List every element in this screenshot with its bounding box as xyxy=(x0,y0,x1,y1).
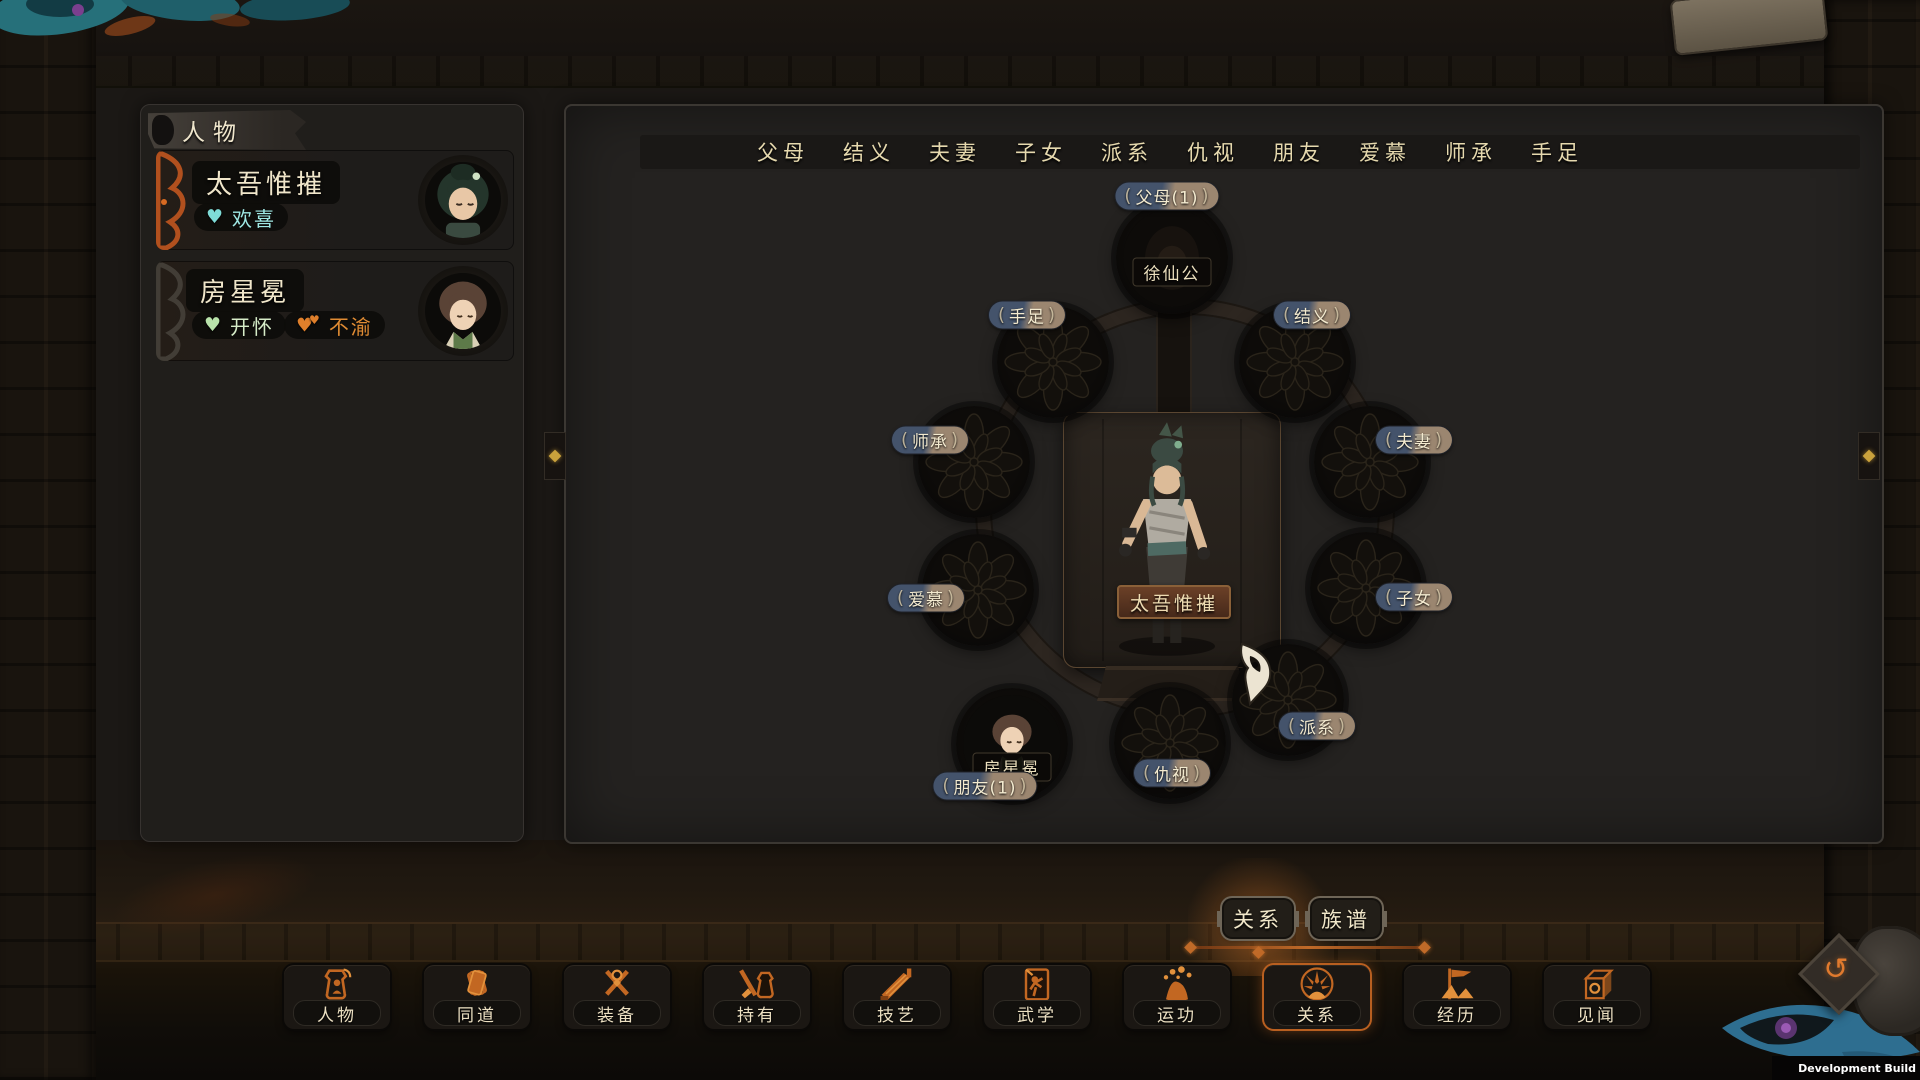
tab-friends[interactable]: 朋友 xyxy=(1273,137,1325,167)
game-cursor xyxy=(1238,642,1280,706)
knowledge-icon xyxy=(1575,966,1619,1004)
double-heart-icon: ♥♥ xyxy=(296,314,322,335)
nav-equipment[interactable]: 装备 xyxy=(564,965,670,1029)
equipment-icon xyxy=(595,966,639,1004)
nav-skills[interactable]: 技艺 xyxy=(844,965,950,1029)
character-list-title: 人物 xyxy=(182,113,244,147)
tab-admire[interactable]: 爱慕 xyxy=(1359,137,1411,167)
avatar-fangxingmian[interactable] xyxy=(425,273,501,349)
taiwu-relations-screen: 人物 太吾惟摧 ♥ 欢喜 xyxy=(0,0,1920,1080)
character-card-taiwu[interactable]: 太吾惟摧 ♥ 欢喜 xyxy=(156,150,514,250)
tab-spouse[interactable]: 夫妻 xyxy=(929,137,981,167)
mood-badge: ♥ 开怀 xyxy=(192,311,286,339)
mood-badge: ♥♥ 不渝 xyxy=(284,311,385,339)
heart-icon: ♥ xyxy=(206,208,225,227)
gem-icon xyxy=(1863,450,1876,463)
nav-character[interactable]: 人物 xyxy=(284,965,390,1029)
tab-master[interactable]: 师承 xyxy=(1445,137,1497,167)
view-tab-genealogy[interactable]: 族谱 xyxy=(1312,900,1380,937)
center-character-art xyxy=(1068,419,1266,659)
nav-neigong[interactable]: 运功 xyxy=(1124,965,1230,1029)
tab-children[interactable]: 子女 xyxy=(1015,137,1067,167)
skills-icon xyxy=(875,966,919,1004)
tab-parents[interactable]: 父母 xyxy=(757,137,809,167)
badge-enemy[interactable]: (仇视) xyxy=(1134,760,1210,787)
tab-notch xyxy=(1294,911,1299,927)
badge-spouse[interactable]: (夫妻) xyxy=(1376,427,1452,454)
frame-divider-line xyxy=(96,922,1824,924)
dev-build-label: Development Build xyxy=(1798,1062,1916,1075)
neigong-icon xyxy=(1155,966,1199,1004)
panel-handle-right xyxy=(1858,432,1880,480)
dev-build-strip: Development Build xyxy=(1772,1056,1920,1080)
tab-notch xyxy=(1382,911,1387,927)
heart-icon: ♥ xyxy=(204,316,223,335)
experience-icon xyxy=(1435,966,1479,1004)
martial-icon xyxy=(1015,966,1059,1004)
gem-icon xyxy=(549,450,562,463)
mood-label: 开怀 xyxy=(230,311,274,340)
badge-admire[interactable]: (爱慕) xyxy=(888,585,964,612)
badge-master[interactable]: (师承) xyxy=(892,427,968,454)
avatar-taiwu[interactable] xyxy=(425,162,501,238)
badge-children[interactable]: (子女) xyxy=(1376,584,1452,611)
inventory-icon xyxy=(735,966,779,1004)
panel-handle-left xyxy=(544,432,566,480)
portrait-frame xyxy=(418,155,508,245)
character-list-header: 人物 xyxy=(148,110,306,150)
node-spouse[interactable] xyxy=(1314,406,1426,518)
nav-martial[interactable]: 武学 xyxy=(984,965,1090,1029)
nav-relations[interactable]: 关系 xyxy=(1264,965,1370,1029)
person-label-xuxiangong: 徐仙公 xyxy=(1133,258,1212,287)
companions-icon xyxy=(455,966,499,1004)
nav-knowledge[interactable]: 见闻 xyxy=(1544,965,1650,1029)
badge-sworn[interactable]: (结义) xyxy=(1274,302,1350,329)
tab-sworn[interactable]: 结义 xyxy=(843,137,895,167)
tab-underline xyxy=(1192,946,1424,949)
character-icon xyxy=(315,966,359,1004)
frame-rail-left xyxy=(0,0,96,1080)
mood-label: 欢喜 xyxy=(232,203,276,232)
nav-companions[interactable]: 同道 xyxy=(424,965,530,1029)
relations-icon xyxy=(1295,966,1339,1004)
character-name: 太吾惟摧 xyxy=(192,161,340,204)
ink-blot-decoration xyxy=(152,115,174,145)
tab-faction[interactable]: 派系 xyxy=(1101,137,1153,167)
mood-badge: ♥ 欢喜 xyxy=(194,203,288,231)
character-card-fangxingmian[interactable]: 房星冕 ♥ 开怀 ♥♥ 不渝 xyxy=(156,261,514,361)
node-master[interactable] xyxy=(918,406,1030,518)
frame-divider-line xyxy=(96,960,1824,962)
flame-decoration xyxy=(156,150,192,250)
tab-enemy[interactable]: 仇视 xyxy=(1187,137,1239,167)
badge-friends[interactable]: (朋友(1)) xyxy=(933,773,1036,800)
character-name: 房星冕 xyxy=(186,269,304,312)
relation-category-tabs: 父母 结义 夫妻 子女 派系 仇视 朋友 爱慕 师承 手足 xyxy=(640,135,1860,169)
tab-notch xyxy=(1305,911,1310,927)
portrait-frame xyxy=(418,266,508,356)
tab-notch xyxy=(1217,911,1222,927)
nav-experience[interactable]: 经历 xyxy=(1404,965,1510,1029)
badge-parents[interactable]: (父母(1)) xyxy=(1115,183,1218,210)
center-name-plaque: 太吾惟摧 xyxy=(1117,585,1231,619)
view-tab-relations[interactable]: 关系 xyxy=(1224,900,1292,937)
nav-inventory[interactable]: 持有 xyxy=(704,965,810,1029)
peacock-feather-decoration xyxy=(0,0,380,64)
center-character-frame xyxy=(1064,413,1280,667)
badge-faction[interactable]: (派系) xyxy=(1279,713,1355,740)
mood-label: 不渝 xyxy=(329,311,373,340)
tab-siblings[interactable]: 手足 xyxy=(1531,137,1583,167)
meander-band xyxy=(96,924,1824,960)
badge-siblings[interactable]: (手足) xyxy=(989,302,1065,329)
